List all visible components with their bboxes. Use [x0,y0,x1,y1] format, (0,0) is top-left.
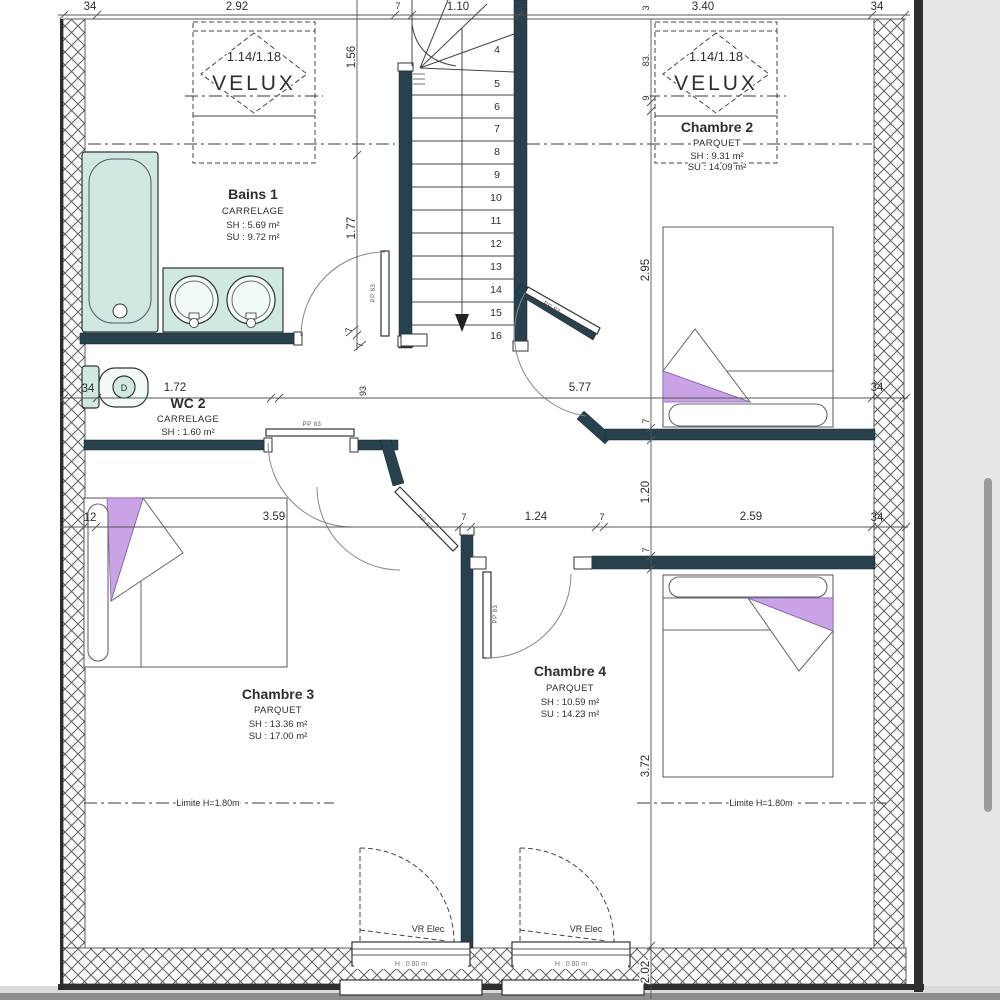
window-sill-height: H : 0.80 m [555,961,587,968]
step-number: 9 [494,169,500,181]
dim: 3.59 [263,511,285,523]
dim: 7 [344,327,354,332]
bed-chambre3 [84,498,287,667]
wall-chambre3-east [461,527,473,948]
room-label-chambre3: Chambre 3 PARQUET SH : 13.36 m² SU : 17.… [242,686,315,742]
room-su: SU : 9.72 m² [226,232,279,243]
room-name: Chambre 3 [242,686,315,702]
dim: 7 [355,342,365,347]
velux-brand-label: VELUX [212,72,296,95]
dim: 7 [395,1,400,11]
velux-size-label: 1.14/1.18 [227,49,281,64]
room-floor: PARQUET [254,705,302,716]
bed-chambre2 [663,227,833,427]
room-su: SU : 17.00 m² [249,731,308,742]
step-number: 16 [490,330,502,342]
room-floor: CARRELAGE [157,414,219,425]
dim: 7 [641,547,651,552]
floor-plan-svg: 4 5 6 7 8 9 10 11 12 13 14 15 16 PP 83 P… [0,0,1000,1000]
room-sh: SH : 1.60 m² [161,427,214,438]
room-label-chambre2: Chambre 2 PARQUET SH : 9.31 m² SU : 14.0… [681,119,754,173]
outer-frame [58,0,924,992]
dim: 1.72 [164,382,186,394]
wall-chambre2-south [605,429,875,440]
step-number: 12 [490,238,502,250]
dim: 9 [641,95,651,100]
wall-stair-left [399,66,412,348]
stair-down-arrow-icon [455,314,469,332]
step-number: 15 [490,307,502,319]
dim-line-left-vertical: 1.56 1.77 7 7 [344,0,366,351]
dim: 2.95 [640,259,652,281]
room-name: Chambre 4 [534,663,607,679]
step-number: 11 [491,215,502,227]
staircase: 4 5 6 7 8 9 10 11 12 13 14 15 16 [401,0,514,346]
room-name: Bains 1 [228,186,278,202]
page-bottom-edge [0,993,1000,1000]
room-label-bains1: Bains 1 CARRELAGE SH : 5.69 m² SU : 9.72… [222,186,284,243]
dim: 1.56 [346,46,358,68]
dim: 34 [871,382,884,394]
dim: 34 [871,1,884,13]
bathtub-drain-icon [113,304,127,318]
dim-line-right-vertical: 3 83. 9 2.95 7 1.20 7 3.72 2.02 [640,5,655,999]
room-sh: SH : 10.59 m² [541,697,600,708]
stair-step-numbers: 4 5 6 7 8 9 10 11 12 13 14 15 16 [490,44,502,342]
room-name: WC 2 [171,395,206,411]
door-label: PP 83 [303,422,322,428]
room-sh: SH : 13.36 m² [249,719,308,730]
door-label: PP 83 [371,283,377,302]
dim: 34 [84,1,97,13]
window-sill-height: H : 0.80 m [395,961,427,968]
toilet-letter: D [121,383,128,393]
step-number: 13 [490,261,502,273]
dim: 34 [82,383,95,395]
step-number: 6 [494,101,500,113]
door-label: PP 83 [493,604,499,623]
pillow [88,504,108,661]
door-chambre4: PP 83 [483,572,571,658]
step-number: 5 [494,78,500,90]
door-frames [264,63,592,569]
dim: 1.24 [525,511,548,523]
room-sh: SH : 9.31 m² [690,151,743,162]
window-motor-label: VR Elec [412,924,445,934]
step-number: 8 [494,146,500,158]
window-motor-label: VR Elec [570,924,603,934]
dim: 7 [641,418,651,423]
velux-brand-label: VELUX [674,72,758,95]
velux-size-label: 1.14/1.18 [689,49,743,64]
dim: 7 [521,1,526,11]
window-sill [340,980,482,995]
faucet-icon [190,319,199,328]
step-number: 14 [490,284,502,296]
wall-bains-south [80,333,300,344]
step-number: 10 [490,192,502,204]
limit-label-right: Limite H=1.80m [729,798,792,808]
wall-right [874,19,904,984]
door-chambre3: PP 83 [317,487,458,570]
room-floor: PARQUET [546,683,594,694]
dim: 1.77 [346,217,358,239]
wall-diagonal-hall [380,440,404,486]
dim: 7 [599,512,604,522]
dim: 83. [641,54,651,67]
dim: 34 [871,512,884,524]
faucet-icon [247,319,256,328]
dim: 1.20 [640,481,652,503]
wall-wc-south [84,440,268,450]
room-label-chambre4: Chambre 4 PARQUET SH : 10.59 m² SU : 14.… [534,663,607,720]
dim: 2.59 [740,511,762,523]
dim: 7 [461,512,466,522]
room-name: Chambre 2 [681,119,754,135]
dim: 1.10 [447,1,469,13]
room-su: SU : 14.09 m² [688,162,747,173]
dim: 5.77 [569,382,591,394]
dim: 93 [358,386,368,396]
floor-plan-page: 4 5 6 7 8 9 10 11 12 13 14 15 16 PP 83 P… [0,0,1000,1000]
room-sh: SH : 5.69 m² [226,220,279,231]
scrollbar-thumb[interactable] [984,478,992,812]
room-floor: CARRELAGE [222,206,284,217]
bed-chambre4 [663,575,833,777]
dim: 3 [641,5,651,10]
dim: 2.92 [226,1,248,13]
room-label-wc2: WC 2 CARRELAGE SH : 1.60 m² [157,395,219,438]
velux-left: 1.14/1.18 VELUX [185,22,323,163]
dim: 12 [84,512,97,524]
pillow [669,577,827,597]
dim: 3.40 [692,1,714,13]
window-sill [502,980,644,995]
dim: 3.72 [640,755,652,777]
dim-line-top: 34 2.92 7 1.10 7 3.40 34 [58,1,910,19]
wall-chambre4-north [592,556,875,569]
room-su: SU : 14.23 m² [541,709,600,720]
step-number: 7 [494,123,500,135]
stair-landing [401,334,427,346]
door-bains: PP 83 [301,251,389,336]
step-number: 4 [494,44,500,56]
pillow [669,404,827,426]
room-floor: PARQUET [693,138,741,149]
limit-label-left: Limite H=1.80m [176,798,239,808]
wall-bottom [63,948,906,984]
dim: 2.02 [640,961,652,983]
